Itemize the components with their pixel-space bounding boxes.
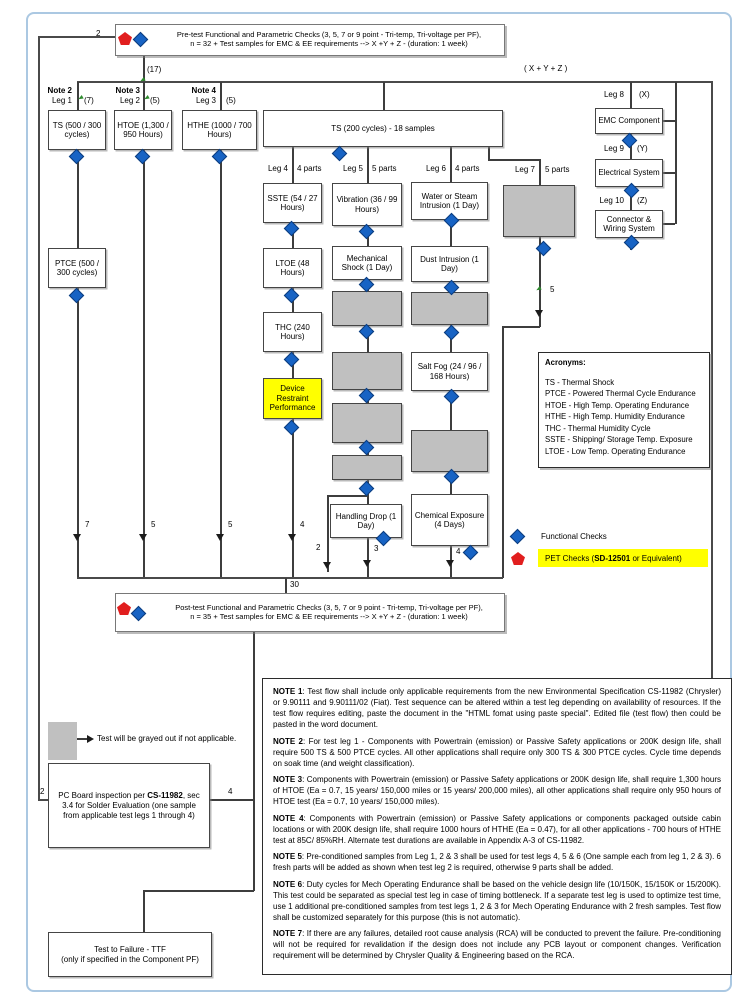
test-box-connector-wiring: Connector & Wiring System: [595, 210, 663, 238]
connector-line: [630, 82, 632, 108]
connector-line: [663, 223, 675, 225]
legend-pet-suffix: or Equivalent): [630, 554, 682, 563]
arrow-down-icon: [363, 560, 371, 567]
pc-board-text: PC Board inspection per CS-11982, sec 3.…: [55, 791, 203, 821]
variable-label: (Y): [637, 144, 648, 153]
count-label: 2: [40, 787, 44, 796]
notes-box: NOTE 1: Test flow shall include only app…: [262, 678, 732, 975]
grayed-test-box: [332, 291, 402, 326]
note-item: NOTE 5: Pre-conditioned samples from Leg…: [273, 851, 721, 873]
test-box-sste: SSTE (54 / 27 Hours): [263, 183, 322, 223]
acronym-item: PTCE - Powered Thermal Cycle Endurance: [545, 388, 703, 400]
leg-label: Leg 7: [503, 165, 535, 174]
leg7-line: [488, 159, 539, 161]
bottom-rail: [77, 577, 503, 579]
grayed-sample-box: [48, 722, 77, 760]
xyz-label: ( X + Y + Z ): [524, 64, 567, 73]
variable-label: (Z): [637, 196, 647, 205]
note-ref-label: Note 2: [38, 86, 72, 95]
acronyms-list: TS - Thermal ShockPTCE - Powered Thermal…: [545, 377, 703, 458]
acronym-item: TS - Thermal Shock: [545, 377, 703, 389]
pc-board-prefix: PC Board inspection per: [58, 791, 147, 800]
grayed-test-box: [411, 430, 488, 472]
count-label: 5: [151, 520, 155, 529]
pretest-box: Pre-test Functional and Parametric Check…: [115, 24, 505, 56]
grayed-test-box: [503, 185, 575, 237]
count-label: 4: [228, 787, 232, 796]
legend-functional-label: Functional Checks: [541, 532, 607, 541]
posttest-box: Post-test Functional and Parametric Chec…: [115, 593, 505, 632]
grayed-test-box: [411, 292, 488, 325]
test-box-label: Chemical Exposure (4 Days): [414, 511, 485, 530]
variable-label: (X): [639, 90, 650, 99]
test-box-label: Handling Drop (1 Day): [333, 512, 399, 531]
test-box-label: LTOE (48 Hours): [266, 259, 319, 278]
note-item: NOTE 1: Test flow shall include only app…: [273, 686, 721, 730]
leg-label: Leg 4: [257, 164, 288, 173]
parts-count-label: (5): [150, 96, 160, 105]
connector-line: [210, 799, 253, 801]
test-box-hthe: HTHE (1000 / 700 Hours): [182, 110, 257, 150]
count-label: 7: [85, 520, 89, 529]
test-box-label: HTHE (1000 / 700 Hours): [185, 121, 254, 140]
left-rail: [38, 36, 40, 800]
arrow-down-icon: [535, 310, 543, 317]
right-rail: [711, 81, 713, 678]
grayed-test-box: [332, 352, 402, 390]
note-item: NOTE 7: If there are any failures, detai…: [273, 928, 721, 961]
acronym-item: HTHE - High Temp. Humidity Endurance: [545, 411, 703, 423]
note-ref-label: Note 3: [104, 86, 140, 95]
leg-label: Leg 10: [588, 196, 624, 205]
arrow-down-icon: [139, 534, 147, 541]
test-box-chemical-exposure: Chemical Exposure (4 Days): [411, 494, 488, 546]
test-box-ltoe: LTOE (48 Hours): [263, 248, 322, 288]
parts-count-label: 4 parts: [297, 164, 321, 173]
acronym-item: HTOE - High Temp. Operating Endurance: [545, 400, 703, 412]
leg7-line: [502, 326, 504, 578]
test-box-thc: THC (240 Hours): [263, 312, 322, 352]
main-rail: [77, 81, 713, 83]
test-to-failure-box: Test to Failure - TTF (only if specified…: [48, 932, 212, 977]
connector-line: [253, 632, 255, 891]
test-box-label: TS (200 cycles) - 18 samples: [331, 124, 435, 133]
arrow-down-icon: [446, 560, 454, 567]
count-label: 2: [96, 29, 100, 38]
connector-line: [38, 799, 48, 801]
note-item: NOTE 6: Duty cycles for Mech Operating E…: [273, 879, 721, 923]
connector-line: [383, 82, 385, 110]
grayed-test-box: [332, 455, 402, 480]
acronym-item: THC - Thermal Humidity Cycle: [545, 423, 703, 435]
grayed-test-box: [332, 403, 402, 443]
count-label: 2: [316, 543, 320, 552]
test-box-ts200: TS (200 cycles) - 18 samples: [263, 110, 503, 147]
arrow-down-icon: [216, 534, 224, 541]
test-box-htoe: HTOE (1,300 / 950 Hours): [114, 110, 172, 150]
test-box-ts500: TS (500 / 300 cycles): [48, 110, 106, 150]
test-box-vibration: Vibration (36 / 99 Hours): [332, 183, 402, 226]
count-label: 4: [456, 547, 460, 556]
count-label: 5: [550, 285, 554, 294]
test-box-electrical-system: Electrical System: [595, 159, 663, 187]
arrow-right-icon: [87, 735, 94, 743]
acronyms-box: Acronyms: TS - Thermal ShockPTCE - Power…: [538, 352, 710, 468]
count-label: 30: [290, 580, 299, 589]
gray-note-label: Test will be grayed out if not applicabl…: [97, 734, 236, 743]
test-box-emc: EMC Component: [595, 108, 663, 134]
leg-label: Leg 8: [592, 90, 624, 99]
leg-label: Leg 1: [38, 96, 72, 105]
test-box-label: Device Restraint Performance: [266, 384, 319, 412]
leg-label: Leg 3: [180, 96, 216, 105]
legend-pet-label: PET Checks (SD-12501 or Equivalent): [538, 549, 708, 567]
leg-label: Leg 6: [415, 164, 446, 173]
test-box-label: Mechanical Shock (1 Day): [335, 254, 399, 273]
count-label: (17): [147, 65, 161, 74]
test-box-label: TS (500 / 300 cycles): [51, 121, 103, 140]
parts-count-label: (7): [84, 96, 94, 105]
acronyms-title: Acronyms:: [545, 358, 586, 367]
count-label: 3: [374, 544, 378, 553]
test-box-dust-intrusion: Dust Intrusion (1 Day): [411, 246, 488, 282]
test-flow-diagram: Pre-test Functional and Parametric Check…: [0, 0, 738, 1000]
test-box-ptce: PTCE (500 / 300 cycles): [48, 248, 106, 288]
count-label: 4: [300, 520, 304, 529]
acronym-item: SSTE - Shipping/ Storage Temp. Exposure: [545, 434, 703, 446]
pretest-line2: n = 32 + Test samples for EMC & EE requi…: [190, 40, 468, 49]
test-box-label: Electrical System: [598, 168, 659, 177]
ttf-line2: (only if specified in the Component PF): [61, 955, 199, 964]
right-legs-out-rail: [675, 82, 677, 224]
connector-line: [38, 36, 115, 38]
test-box-label: Salt Fog (24 / 96 / 168 Hours): [414, 362, 485, 381]
posttest-line2: n = 35 + Test samples for EMC & EE requi…: [190, 613, 468, 622]
test-box-label: Dust Intrusion (1 Day): [414, 255, 485, 274]
legend-pet-spec: SD-12501: [594, 554, 630, 563]
branch-2-line: [327, 495, 367, 497]
test-box-mech-shock: Mechanical Shock (1 Day): [332, 246, 402, 280]
note-ref-label: Note 4: [180, 86, 216, 95]
test-box-handling-drop: Handling Drop (1 Day): [330, 504, 402, 538]
test-box-label: Connector & Wiring System: [598, 215, 660, 234]
connector-line: [663, 120, 675, 122]
leg-label: Leg 2: [104, 96, 140, 105]
connector-line: [285, 578, 287, 593]
arrow-down-icon: [323, 562, 331, 569]
note-item: NOTE 3: Components with Powertrain (emis…: [273, 774, 721, 807]
legend-pet-prefix: PET Checks (: [545, 554, 594, 563]
leg-label: Leg 5: [332, 164, 363, 173]
legend-pet-text: PET Checks (SD-12501 or Equivalent): [545, 554, 682, 563]
count-label: 5: [228, 520, 232, 529]
test-box-label: EMC Component: [598, 116, 659, 125]
test-box-salt-fog: Salt Fog (24 / 96 / 168 Hours): [411, 352, 488, 391]
test-box-label: Water or Steam Intrusion (1 Day): [414, 192, 485, 211]
pc-board-inspection-box: PC Board inspection per CS-11982, sec 3.…: [48, 763, 210, 848]
leg-label: Leg 9: [592, 144, 624, 153]
gray-note-arrow-line: [77, 738, 87, 740]
note-item: NOTE 2: For test leg 1 - Components with…: [273, 736, 721, 769]
connector-line: [143, 890, 145, 932]
pc-board-spec: CS-11982: [147, 791, 183, 800]
parts-count-label: 4 parts: [455, 164, 479, 173]
parts-count-label: 5 parts: [545, 165, 569, 174]
notes-list: NOTE 1: Test flow shall include only app…: [273, 686, 721, 961]
leg7-line: [502, 326, 540, 328]
test-box-label: PTCE (500 / 300 cycles): [51, 259, 103, 278]
arrow-down-icon: [73, 534, 81, 541]
note-item: NOTE 4: Components with Powertrain (emis…: [273, 813, 721, 846]
parts-count-label: (5): [226, 96, 236, 105]
test-box-label: THC (240 Hours): [266, 323, 319, 342]
ttf-line1: Test to Failure - TTF: [94, 945, 166, 954]
branch-2-line: [327, 495, 329, 572]
arrow-down-icon: [288, 534, 296, 541]
test-box-label: SSTE (54 / 27 Hours): [266, 194, 319, 213]
acronym-item: LTOE - Low Temp. Operating Endurance: [545, 446, 703, 458]
test-box-label: Vibration (36 / 99 Hours): [335, 195, 399, 214]
parts-count-label: 5 parts: [372, 164, 396, 173]
connector-line: [663, 172, 675, 174]
connector-line: [143, 890, 254, 892]
test-box-label: HTOE (1,300 / 950 Hours): [117, 121, 169, 140]
test-box-device-restraint: Device Restraint Performance: [263, 378, 322, 419]
